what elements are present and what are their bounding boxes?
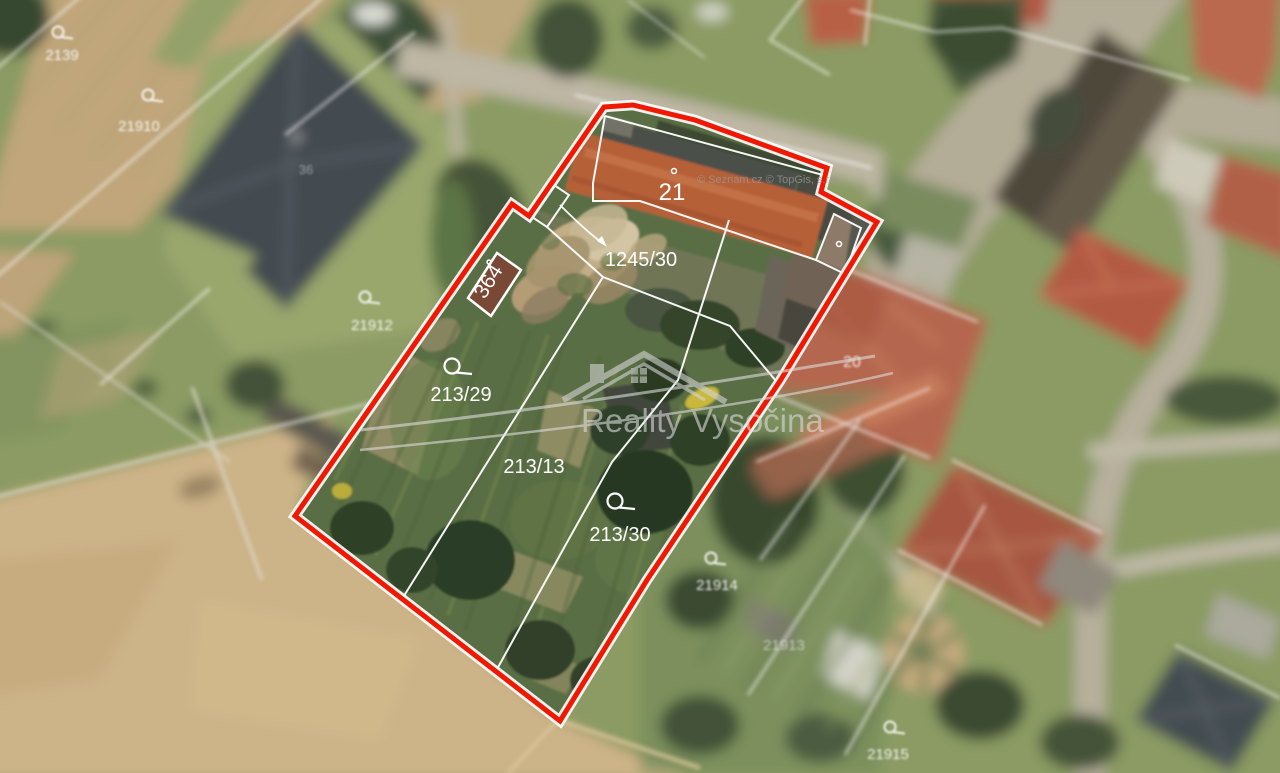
svg-text:Reality Vysočina: Reality Vysočina	[581, 402, 824, 439]
svg-text:1245/30: 1245/30	[605, 249, 677, 271]
svg-text:21915: 21915	[867, 746, 909, 763]
svg-text:2139: 2139	[45, 47, 78, 64]
svg-text:213/13: 213/13	[503, 456, 564, 478]
svg-text:21: 21	[659, 179, 686, 206]
svg-text:213/29: 213/29	[430, 384, 491, 406]
svg-text:21914: 21914	[696, 577, 738, 594]
svg-text:21912: 21912	[351, 317, 393, 334]
svg-text:36: 36	[299, 162, 313, 177]
svg-text:21910: 21910	[118, 118, 160, 135]
svg-text:20: 20	[843, 354, 861, 371]
svg-text:213/30: 213/30	[589, 524, 650, 546]
svg-text:© Seznam.cz © TopGis, s.r.o.: © Seznam.cz © TopGis, s.r.o.	[697, 174, 841, 186]
svg-text:21913: 21913	[763, 637, 805, 654]
